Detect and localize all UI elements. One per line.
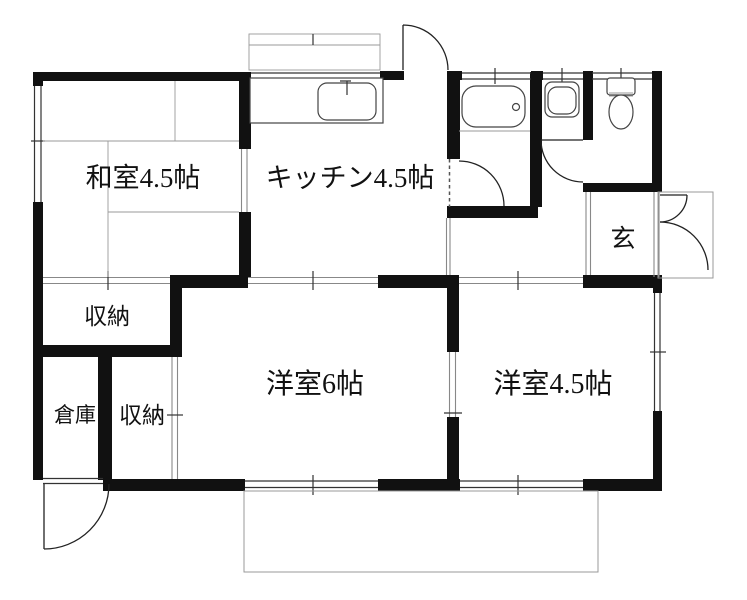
souko-door-arc (44, 484, 109, 549)
window-bath (462, 68, 531, 84)
bath-door-arc (459, 161, 504, 206)
window-kitchen-bay (249, 34, 380, 79)
window-western45-right (650, 293, 666, 411)
wall-mid-seg2 (378, 275, 459, 288)
wall-bath-bottom (447, 206, 538, 218)
wall-left-main (33, 202, 43, 480)
room-label-closet-upper: 収納 (84, 304, 130, 329)
fixtures (250, 78, 635, 131)
wall-right-upper (652, 71, 662, 192)
wall-closet-right (170, 275, 182, 357)
wall-western-divider-upper (447, 275, 459, 352)
room-label-closet-lower: 収納 (119, 403, 165, 428)
entrance-door-small-arc (660, 195, 687, 222)
wall-closet-bottom (33, 345, 182, 357)
wall-bottom-mid (378, 479, 460, 491)
wall-top-pier1 (380, 71, 404, 80)
kitchen-sink-icon (250, 78, 383, 123)
room-label-genkan: 玄 (610, 225, 635, 253)
wall-mid-seg1 (172, 275, 248, 288)
wall-left-stub (33, 72, 43, 86)
wall-toilet-bottom (583, 183, 662, 192)
fusuma-washitsu-closet (43, 271, 170, 290)
opening-genkan-hall (586, 192, 591, 275)
opening-kitchen-hall (447, 218, 451, 275)
window-bottom-east (460, 475, 583, 495)
washbasin-icon (545, 82, 579, 117)
room-label-kitchen: キッチン4.5帖 (266, 163, 435, 193)
wall-kitchen-bath-upper (447, 72, 460, 159)
room-label-washitsu: 和室4.5帖 (86, 163, 201, 193)
wall-washitsu-kitchen-upper (239, 81, 251, 149)
toilet-icon (607, 78, 635, 129)
wall-top-west (33, 72, 251, 81)
wall-washitsu-kitchen-lower (239, 212, 251, 277)
wall-washroom-toilet (583, 72, 593, 140)
wall-bath-washroom (530, 72, 542, 207)
toilet-door-arc (541, 140, 583, 182)
bay-window (249, 34, 380, 70)
sliding-western6-western45 (444, 352, 462, 417)
wall-bottom-west (103, 479, 245, 491)
veranda-outline (244, 491, 598, 572)
bathtub-icon (459, 86, 530, 131)
opening-souko (43, 479, 103, 484)
window-bottom-west (245, 475, 378, 495)
window-left-wall (31, 86, 45, 202)
wall-bottom-east (583, 479, 662, 491)
back-door-arc (403, 25, 448, 70)
sliding-doors (43, 149, 659, 484)
entrance-door-main-arc (660, 222, 708, 270)
room-labels: 和室4.5帖 キッチン4.5帖 玄 収納 倉庫 収納 洋室6帖 洋室4.5帖 (54, 163, 636, 428)
walls (33, 71, 662, 491)
sliding-closet-western6 (167, 357, 183, 479)
room-label-souko: 倉庫 (54, 403, 96, 427)
room-label-western6: 洋室6帖 (266, 368, 364, 400)
sliding-hall-western45 (459, 271, 583, 290)
fusuma-washitsu-kitchen (242, 149, 248, 212)
wall-souko-closet (98, 357, 112, 480)
floorplan-canvas: 和室4.5帖 キッチン4.5帖 玄 収納 倉庫 収納 洋室6帖 洋室4.5帖 (0, 0, 747, 600)
floorplan: 和室4.5帖 キッチン4.5帖 玄 収納 倉庫 収納 洋室6帖 洋室4.5帖 (0, 0, 747, 600)
room-label-western45: 洋室4.5帖 (493, 368, 612, 400)
wall-genkan-bottom (583, 275, 662, 288)
sliding-kitchen-western6 (248, 271, 378, 290)
